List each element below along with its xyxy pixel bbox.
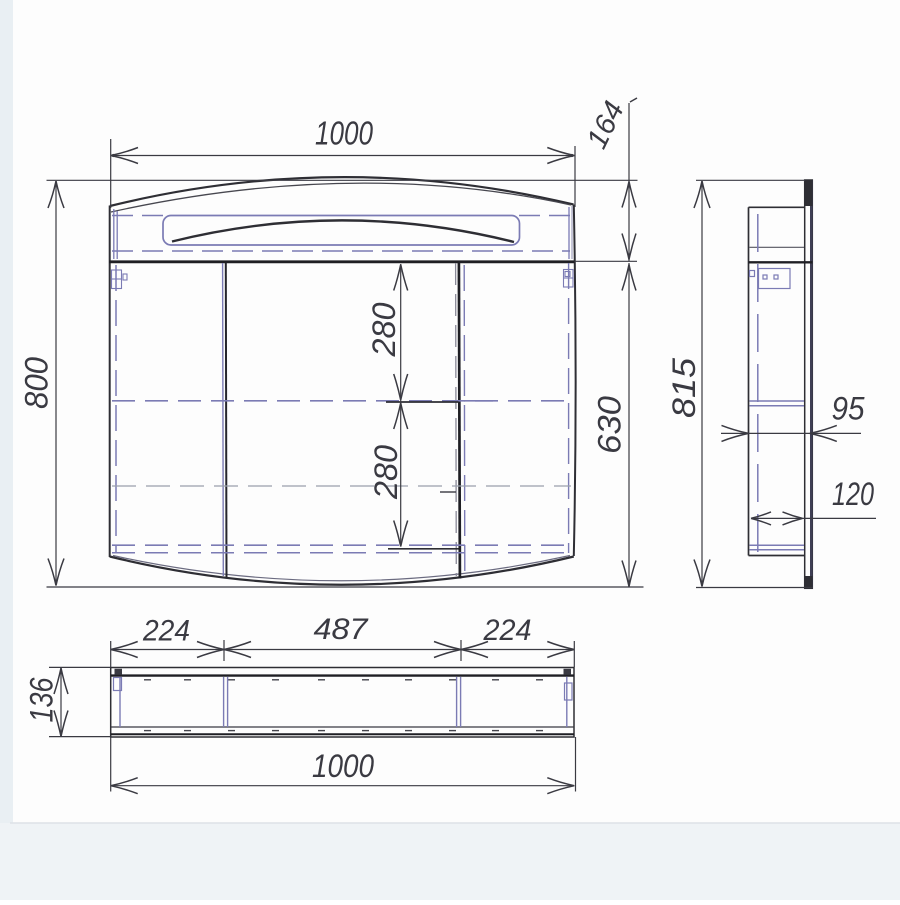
svg-text:815: 815 [666, 358, 702, 418]
svg-text:136: 136 [24, 677, 60, 722]
svg-text:224: 224 [483, 614, 532, 647]
svg-text:120: 120 [832, 476, 874, 512]
svg-text:800: 800 [19, 357, 55, 409]
svg-text:280: 280 [368, 445, 404, 500]
svg-text:487: 487 [314, 613, 369, 646]
svg-text:1000: 1000 [312, 748, 374, 784]
svg-text:280: 280 [366, 302, 402, 357]
svg-text:224: 224 [142, 615, 190, 648]
svg-text:95: 95 [832, 391, 865, 427]
svg-text:630: 630 [592, 396, 628, 454]
svg-text:1000: 1000 [315, 115, 374, 152]
